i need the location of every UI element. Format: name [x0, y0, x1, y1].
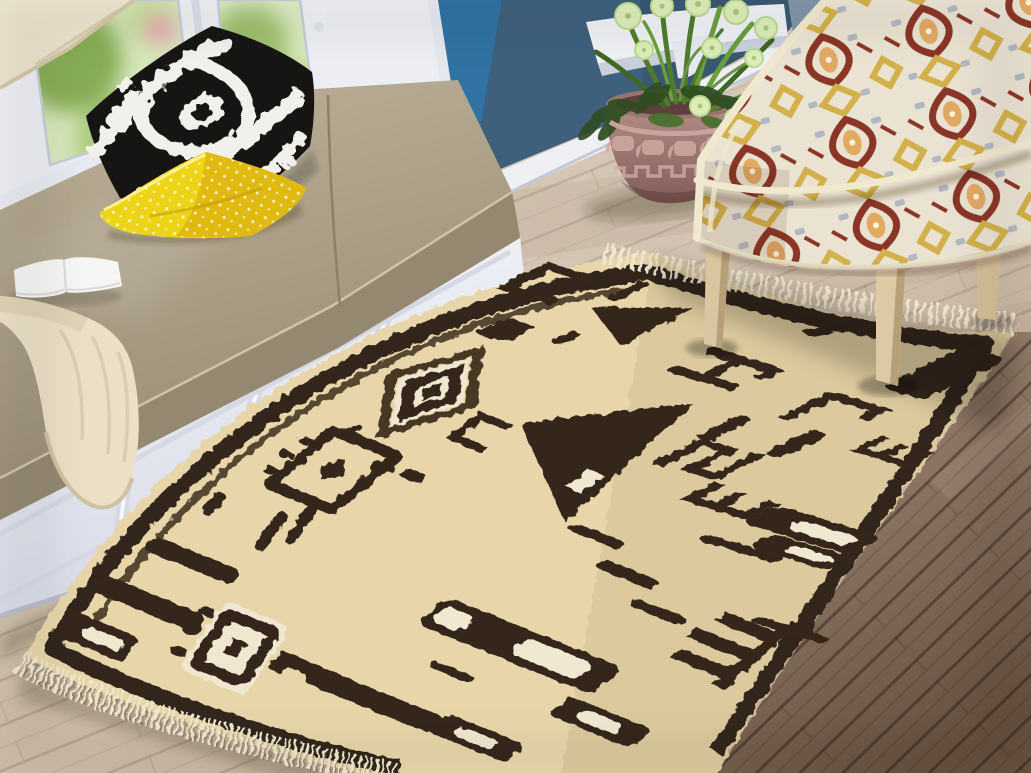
scene-photo — [0, 0, 1031, 773]
scene-canvas — [0, 0, 1031, 773]
